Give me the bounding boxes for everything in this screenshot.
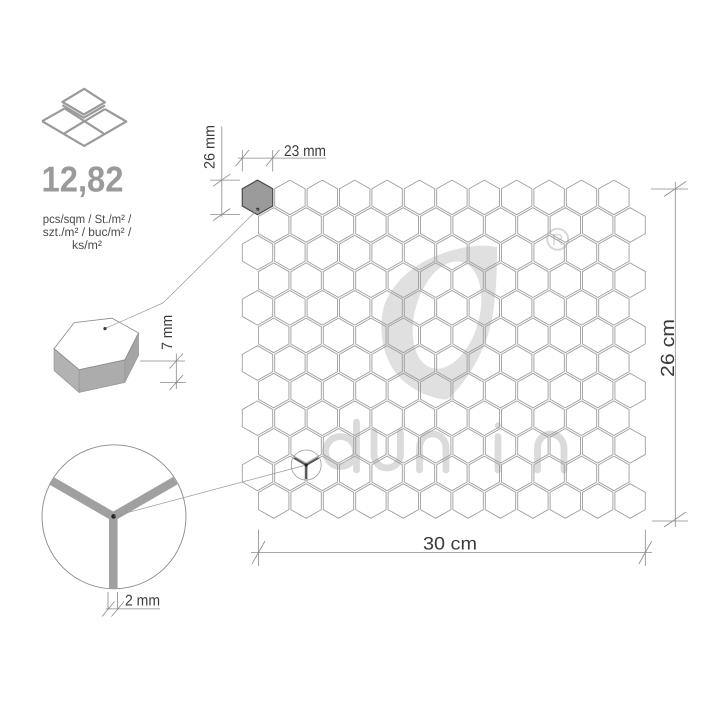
svg-text:pcs/sqm / St./m² /: pcs/sqm / St./m² / xyxy=(43,212,132,226)
svg-text:12,82: 12,82 xyxy=(42,159,124,200)
svg-text:szt./m² / buc/m² /: szt./m² / buc/m² / xyxy=(43,225,132,239)
svg-text:30 cm: 30 cm xyxy=(423,534,477,554)
svg-text:26 cm: 26 cm xyxy=(658,319,679,377)
svg-text:23 mm: 23 mm xyxy=(284,143,326,160)
svg-text:7 mm: 7 mm xyxy=(159,315,176,350)
svg-text:2 mm: 2 mm xyxy=(125,593,160,610)
svg-text:ks/m²: ks/m² xyxy=(72,238,102,252)
svg-text:26 mm: 26 mm xyxy=(202,125,219,169)
